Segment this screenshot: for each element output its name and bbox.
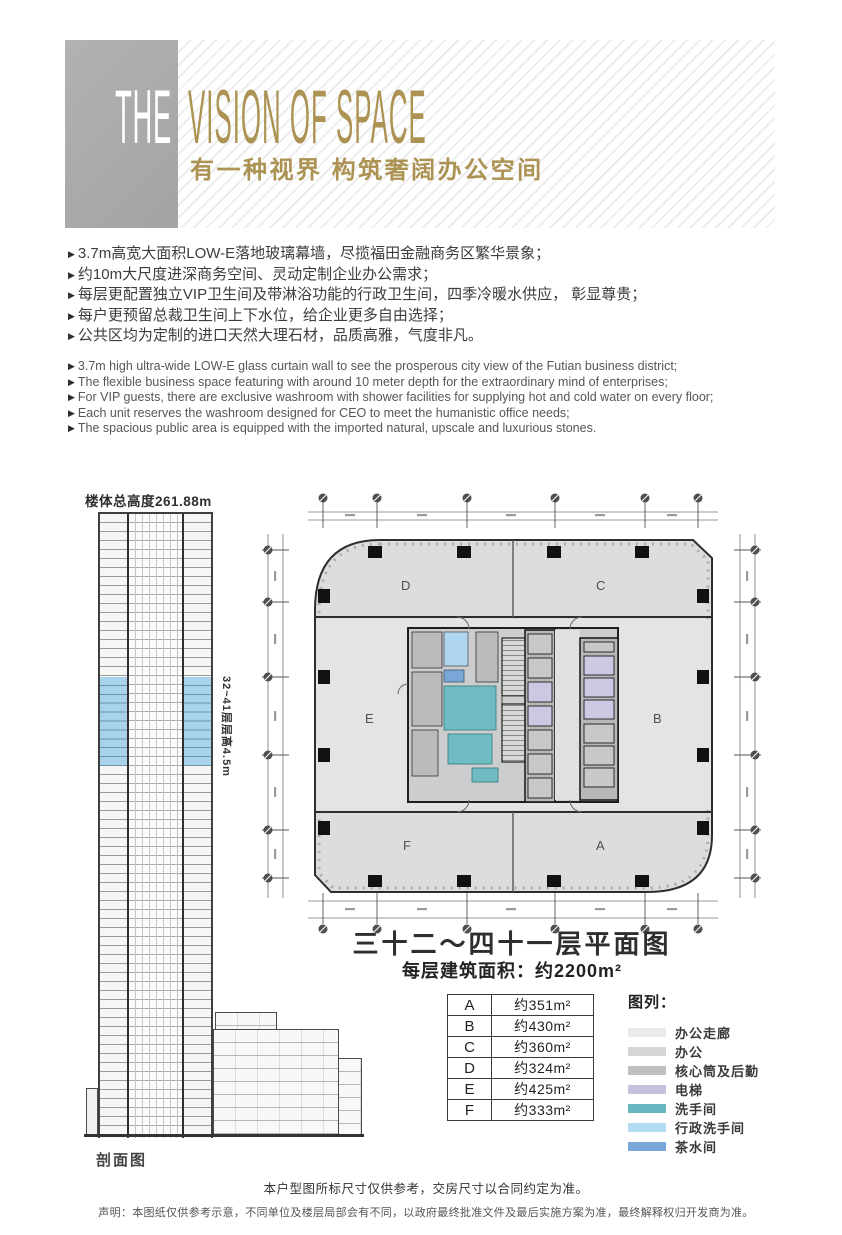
highlighted-floors-right [184,677,211,766]
feature-en-text: Each unit reserves the washroom designed… [78,406,570,420]
legend-title: 图列： [628,991,759,1012]
ground-line [84,1134,364,1137]
section-caption: 剖面图 [96,1149,147,1170]
building-section-tower [98,512,213,1138]
table-row: F约333m² [448,1100,594,1121]
feature-cn-text: 约10m大尺度进深商务空间、灵动定制企业办公需求； [78,266,437,283]
area-cell: 约351m² [492,995,594,1016]
feature-cn-text: 公共区均为定制的进口天然大理石材，品质高雅，气度非凡。 [78,327,483,344]
highlighted-floors-left [100,677,127,766]
legend-label: 洗手间 [675,1099,717,1118]
feature-cn-text: 3.7m高宽大面积LOW-E落地玻璃幕墙，尽揽福田金融商务区繁华景象； [78,245,550,262]
zone-cell: D [448,1058,492,1079]
legend-item: 茶水间 [628,1137,759,1156]
feature-cn-text: 每户更预留总裁卫生间上下水位，给企业更多自由选择； [78,307,453,324]
zone-area-table: A约351m² B约430m² C约360m² D约324m² E约425m² … [447,994,594,1121]
zone-cell: A [448,995,492,1016]
bullet-arrow-icon: ▶ [68,270,75,280]
features-chinese-list: ▶3.7m高宽大面积LOW-E落地玻璃幕墙，尽揽福田金融商务区繁华景象； ▶约1… [68,244,788,347]
legend-label: 电梯 [675,1080,703,1099]
bullet-arrow-icon: ▶ [68,331,75,341]
header-title-en: VISION OF SPACE [188,80,427,156]
zone-label-a: A [596,838,606,853]
feature-en-text: 3.7m high ultra-wide LOW-E glass curtain… [78,359,677,373]
table-row: B约430m² [448,1016,594,1037]
bullet-arrow-icon: ▶ [68,377,75,387]
zone-label-f: F [403,838,412,853]
header-word-the: THE [115,80,172,156]
legend-item: 办公走廊 [628,1023,759,1042]
legend-swatch [628,1104,666,1113]
podium-upper-step [215,1012,277,1030]
feature-cn-text: 每层更配置独立VIP卫生间及带淋浴功能的行政卫生间，四季冷暖水供应， 彰显尊贵； [78,286,646,303]
dimension-lines-top [308,494,718,529]
elevator-bank-left [525,630,555,802]
legend-item: 行政洗手间 [628,1118,759,1137]
zone-cell: B [448,1016,492,1037]
legend-swatch [628,1142,666,1151]
brochure-page: THE VISION OF SPACE 有一种视界 构筑奢阔办公空间 ▶3.7m… [0,0,842,1235]
feature-en-text: The flexible business space featuring wi… [78,375,668,389]
legend-swatch [628,1085,666,1094]
area-cell: 约360m² [492,1037,594,1058]
tower-core-shafts [127,514,184,1138]
area-cell: 约333m² [492,1100,594,1121]
table-row: D约324m² [448,1058,594,1079]
bullet-arrow-icon: ▶ [68,423,75,433]
feature-cn-item: ▶每户更预留总裁卫生间上下水位，给企业更多自由选择； [68,306,788,327]
tea-room [444,670,464,682]
section-left-annex [86,1088,98,1135]
bullet-arrow-icon: ▶ [68,249,75,259]
zone-label-d: D [401,578,411,593]
feature-en-text: The spacious public area is equipped wit… [78,421,596,435]
feature-en-item: ▶The spacious public area is equipped wi… [68,421,808,437]
legend-item: 洗手间 [628,1099,759,1118]
floor-plan-title: 三十二～四十一层平面图 [262,924,762,961]
header-subtitle-cn: 有一种视界 构筑奢阔办公空间 [190,150,544,185]
area-cell: 约430m² [492,1016,594,1037]
legend-label: 办公走廊 [675,1023,731,1042]
bullet-arrow-icon: ▶ [68,408,75,418]
feature-en-item: ▶The flexible business space featuring w… [68,375,808,391]
elevator-lobby [555,630,580,800]
plan-legend: 图列： 办公走廊 办公 核心筒及后勤 电梯 洗手间 行政洗手间 茶水间 [628,991,759,1156]
podium-main-block [213,1029,339,1135]
table-row: E约425m² [448,1079,594,1100]
zone-cell: C [448,1037,492,1058]
footer-disclaimer-line1: 本户型图所标尺寸仅供参考，交房尺寸以合同约定为准。 [56,1178,796,1197]
zone-label-e: E [365,711,375,726]
dimension-lines-left [262,534,289,898]
building-core [398,617,618,812]
features-english-list: ▶3.7m high ultra-wide LOW-E glass curtai… [68,359,808,437]
elevator-bank-right [580,638,618,800]
legend-label: 核心筒及后勤 [675,1061,759,1080]
dimension-lines-right [734,534,761,898]
podium-low-wing [338,1058,362,1135]
area-cell: 约425m² [492,1079,594,1100]
bullet-arrow-icon: ▶ [68,311,75,321]
feature-cn-item: ▶约10m大尺度进深商务空间、灵动定制企业办公需求； [68,265,788,286]
feature-cn-item: ▶每层更配置独立VIP卫生间及带淋浴功能的行政卫生间，四季冷暖水供应， 彰显尊贵… [68,285,788,306]
feature-en-item: ▶Each unit reserves the washroom designe… [68,406,808,422]
legend-item: 办公 [628,1042,759,1061]
table-row: C约360m² [448,1037,594,1058]
feature-en-text: For VIP guests, there are exclusive wash… [78,390,714,404]
legend-swatch [628,1123,666,1132]
legend-item: 核心筒及后勤 [628,1061,759,1080]
footer: 本户型图所标尺寸仅供参考，交房尺寸以合同约定为准。 声明：本图纸仅供参考示意，不… [56,1178,796,1220]
area-cell: 约324m² [492,1058,594,1079]
legend-swatch [628,1066,666,1075]
feature-en-item: ▶3.7m high ultra-wide LOW-E glass curtai… [68,359,808,375]
header-gray-box: THE [65,40,178,228]
bullet-arrow-icon: ▶ [68,361,75,371]
feature-en-item: ▶For VIP guests, there are exclusive was… [68,390,808,406]
footer-disclaimer-line2: 声明：本图纸仅供参考示意，不同单位及楼层局部会有不同，以政府最终批准文件及最后实… [56,1204,796,1220]
floor-plan-area-per-floor: 每层建筑面积：约2200m² [262,957,762,983]
floor-plan-drawing: D C E B F A [262,488,762,938]
legend-label: 茶水间 [675,1137,717,1156]
zone-cell: F [448,1100,492,1121]
legend-label: 行政洗手间 [675,1118,745,1137]
bullet-arrow-icon: ▶ [68,392,75,402]
legend-item: 电梯 [628,1080,759,1099]
legend-swatch [628,1047,666,1056]
legend-swatch [628,1028,666,1037]
feature-cn-item: ▶公共区均为定制的进口天然大理石材，品质高雅，气度非凡。 [68,326,788,347]
executive-washroom [444,632,468,666]
zone-label-b: B [653,711,663,726]
bullet-arrow-icon: ▶ [68,290,75,300]
zone-label-c: C [596,578,606,593]
feature-cn-item: ▶3.7m高宽大面积LOW-E落地玻璃幕墙，尽揽福田金融商务区繁华景象； [68,244,788,265]
legend-label: 办公 [675,1042,703,1061]
building-total-height-label: 楼体总高度261.88m [85,490,212,510]
floors-32-41-note: 32~41层层高4.5m [219,676,235,801]
zone-cell: E [448,1079,492,1100]
table-row: A约351m² [448,995,594,1016]
